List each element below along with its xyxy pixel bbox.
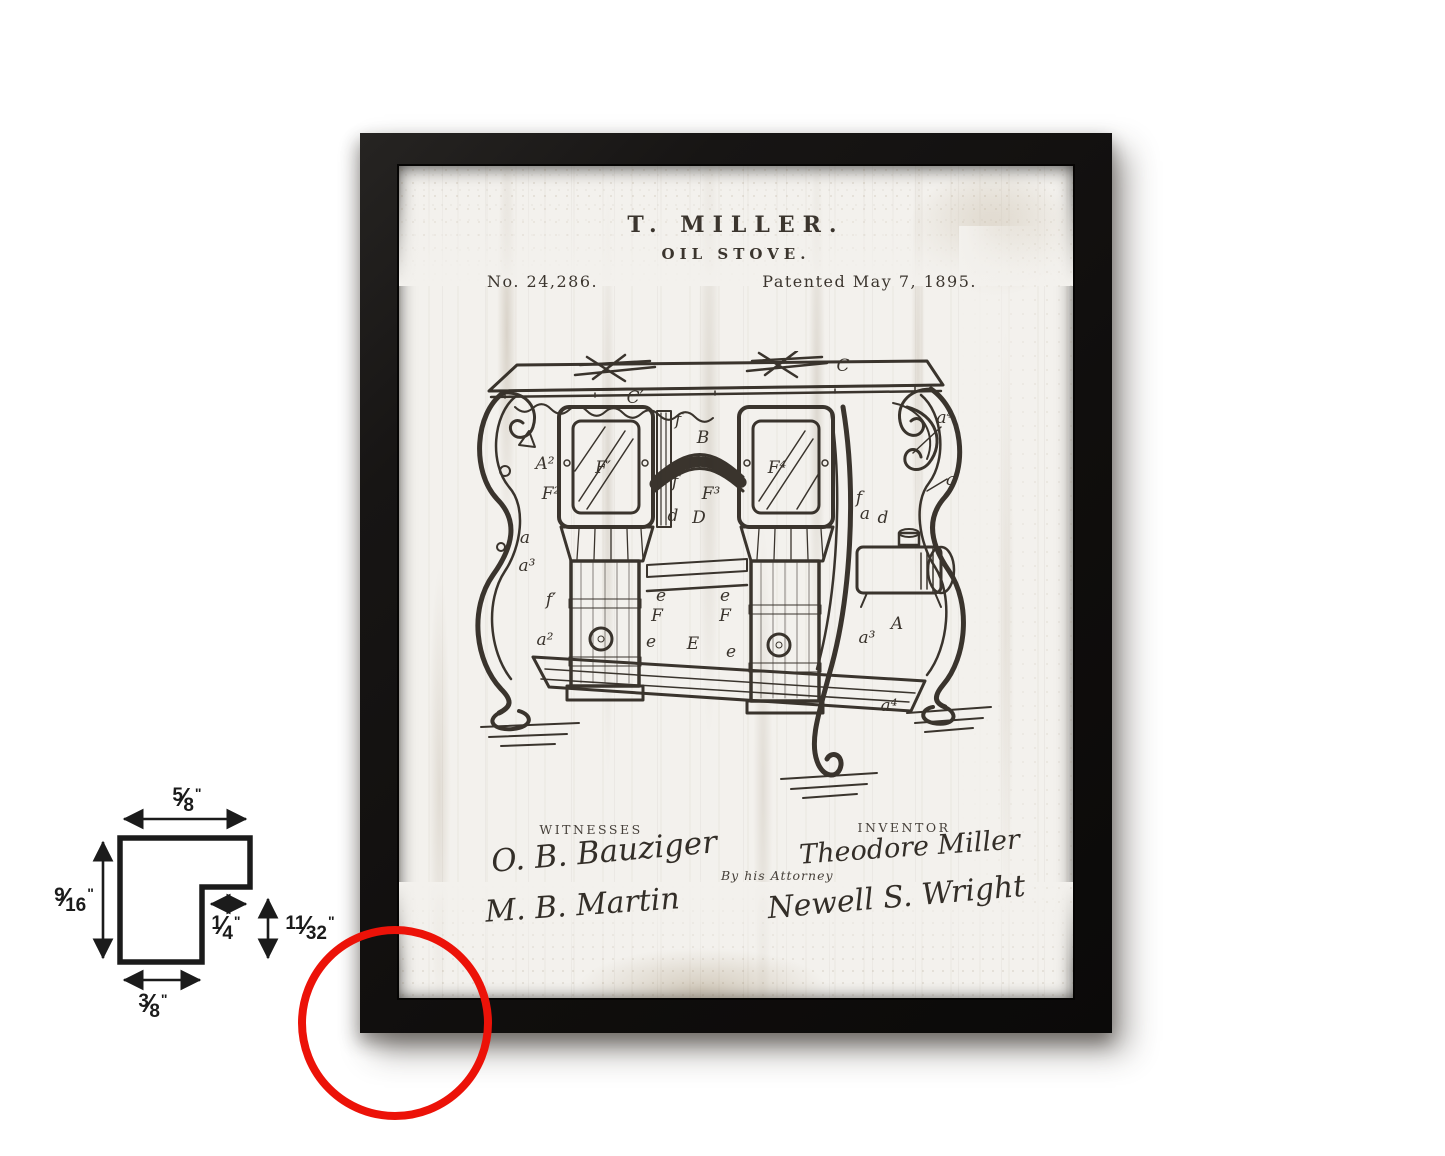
drawing-label: a³ — [519, 556, 536, 576]
drawing-label: A — [889, 614, 903, 634]
drawing-label: d — [878, 508, 889, 528]
patent-drawing: C C′ f B A² F′ F⁴ F² f F³ a⁴ a′ a d D f … — [475, 351, 1005, 803]
drawing-label: F² — [541, 484, 561, 504]
drawing-label: e — [720, 586, 730, 606]
drawing-label: F⁴ — [767, 458, 787, 478]
drawing-label: e — [646, 632, 656, 652]
dimension-top-width: 5⁄8" — [145, 782, 229, 813]
witness-signature-2: M. B. Martin — [484, 881, 681, 930]
drawing-label: a — [860, 504, 870, 524]
patent-header: T. MILLER. OIL STOVE. — [399, 212, 1073, 263]
drawing-label: F — [650, 606, 664, 626]
drawing-label: a — [520, 528, 530, 548]
dimension-rabbet-width: 1⁄4" — [198, 910, 254, 941]
patent-print-paper: T. MILLER. OIL STOVE. No. 24,286. Patent… — [399, 166, 1073, 998]
dimension-left-height: 9⁄16" — [48, 882, 100, 913]
drawing-label: a³ — [859, 628, 876, 648]
patent-title: T. MILLER. — [399, 212, 1073, 238]
drawing-label: d — [668, 506, 679, 526]
patent-number: No. 24,286. — [487, 272, 598, 291]
drawing-label: D — [691, 508, 706, 528]
drawing-label: a′ — [946, 470, 960, 490]
drawing-label: f′ — [544, 590, 556, 610]
picture-frame: T. MILLER. OIL STOVE. No. 24,286. Patent… — [360, 133, 1112, 1033]
drawing-label: C — [836, 356, 849, 376]
inventor-signature: Theodore Miller — [798, 824, 1021, 870]
drawing-label: C′ — [627, 388, 644, 408]
drawing-label: e — [656, 586, 666, 606]
patent-subtitle: OIL STOVE. — [399, 245, 1073, 263]
drawing-label: F′ — [594, 458, 611, 478]
drawing-label: F³ — [701, 484, 721, 504]
attorney-label: By his Attorney — [721, 868, 834, 883]
drawing-label: A² — [533, 454, 554, 474]
drawing-label: a⁴ — [881, 696, 898, 716]
drawing-label: a² — [537, 630, 554, 650]
corner-highlight-circle — [298, 926, 492, 1120]
drawing-label: a⁴ — [937, 408, 954, 428]
drawing-label: E — [686, 634, 700, 654]
product-image: T. MILLER. OIL STOVE. No. 24,286. Patent… — [0, 0, 1445, 1156]
drawing-label: F — [718, 606, 732, 626]
drawing-label: e — [726, 642, 736, 662]
patent-date: Patented May 7, 1895. — [762, 272, 977, 291]
dimension-rabbet-height: 11⁄32" — [276, 910, 344, 941]
patent-number-row: No. 24,286. Patented May 7, 1895. — [487, 272, 977, 291]
dimension-bottom-width: 3⁄8" — [118, 988, 188, 1019]
drawing-label: B — [696, 428, 710, 448]
